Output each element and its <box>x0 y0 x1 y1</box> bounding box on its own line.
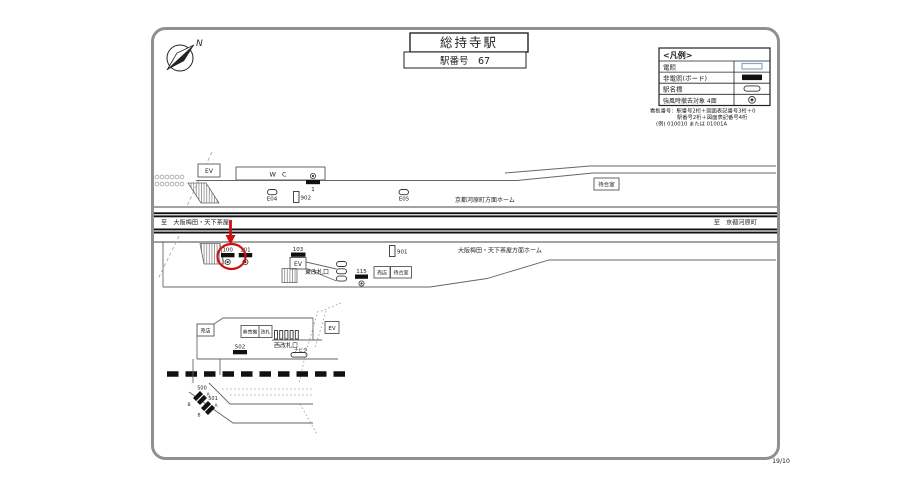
legend-label-lit: 電照 <box>663 64 677 72</box>
sign-e05-oval <box>399 190 409 195</box>
east-ticket-gates <box>337 262 347 282</box>
sign-1-wind-dot <box>312 175 314 177</box>
sign-115-wind-dot <box>360 282 362 284</box>
west-shop-label: 売店 <box>200 328 210 335</box>
sign-103-board <box>291 253 306 257</box>
sign-115-label: 115 <box>356 269 367 275</box>
upper-waiting-room-label: 待合室 <box>598 181 615 189</box>
east-gate-label: 東改札口 <box>305 268 329 276</box>
toilet-label: W C <box>269 171 288 179</box>
sign-901-label: 901 <box>397 250 408 256</box>
sign-103-label: 103 <box>293 247 304 253</box>
track-line <box>154 232 777 234</box>
direction-label-kawaramachi: 至 京都河原町 <box>714 219 757 227</box>
note-line-1: 看板番号：駅番号2桁＋図面表記番号3桁＋0 <box>650 107 756 115</box>
legend-oval-symbol <box>744 86 760 91</box>
navita-panel <box>291 353 307 358</box>
sign-1-board <box>306 180 320 184</box>
track-line <box>154 212 777 214</box>
sign-100-wind-dot <box>227 261 229 263</box>
page-number: 19/10 <box>772 458 790 465</box>
sign-901-panel <box>390 246 396 257</box>
sign-e04: E04 <box>267 190 278 203</box>
legend-title: <凡例> <box>663 50 692 60</box>
lower-elevator-label: EV <box>294 261 303 268</box>
sign-e04-label: E04 <box>267 197 278 203</box>
station-map-page: N 総持寺駅 駅番号 67 <凡例> 電照 非電照(ボード) 駅名標 強風時撤去… <box>0 0 919 491</box>
note-line-3: (例) 010010 または 01001A <box>656 120 727 128</box>
track-line <box>154 229 777 231</box>
sign-e04-oval <box>268 190 278 195</box>
legend-label-board: 非電照(ボード) <box>663 74 707 83</box>
station-name: 総持寺駅 <box>440 35 498 50</box>
legend-label-wind: 強風時撤去対象 4面 <box>663 97 717 105</box>
sign-501-b-label: B <box>198 413 201 419</box>
sign-e05: E05 <box>399 190 410 203</box>
sign-e05-label: E05 <box>399 197 410 203</box>
title-block: 総持寺駅 駅番号 67 <box>404 33 528 68</box>
sign-902-label: 902 <box>301 196 312 202</box>
sign-502-board <box>233 350 247 354</box>
lower-platform-stairs <box>200 244 224 265</box>
sign-1-label: 1 <box>311 187 315 193</box>
sign-500-b-label: B <box>188 402 191 408</box>
sign-100-board <box>221 253 235 257</box>
legend-label-station-sign: 駅名標 <box>663 85 683 94</box>
legend-board-symbol <box>742 75 762 81</box>
upper-platform-label: 京都河原町方面ホーム <box>455 196 515 204</box>
legend-lit-symbol <box>742 64 762 70</box>
upper-elevator-label: EV <box>205 168 214 175</box>
lower-platform-label: 大阪梅田・天下茶屋方面ホーム <box>458 247 542 255</box>
navita-sign: ナビタ <box>291 347 308 358</box>
ticket-machine-label: 券売機 <box>243 329 258 336</box>
sign-501-label: 501 <box>208 396 218 402</box>
west-elevator-label: EV <box>328 326 335 332</box>
lower-waiting-room-label: 待合室 <box>393 270 408 277</box>
sign-902-panel <box>294 192 300 203</box>
compass-north-label: N <box>196 39 203 49</box>
station-map-drawing: N 総持寺駅 駅番号 67 <凡例> 電照 非電照(ボード) 駅名標 強風時撤去… <box>0 0 919 491</box>
sign-502: 502 <box>233 345 247 355</box>
station-number: 駅番号 67 <box>440 55 490 67</box>
sign-500-label: 500 <box>197 386 207 392</box>
track-line <box>154 215 777 217</box>
sign-502-label: 502 <box>235 345 246 351</box>
note-line-2: 駅番号2桁＋図面表記番号4桁 <box>677 113 748 121</box>
legend-box: <凡例> 電照 非電照(ボード) 駅名標 強風時撤去対象 4面 <box>659 48 770 106</box>
sign-115-board <box>355 275 368 279</box>
direction-label-umeda: 至 大阪梅田・天下茶屋 <box>161 219 229 227</box>
gate-box-label: 改札 <box>261 329 271 336</box>
lower-shop-label: 売店 <box>377 270 387 277</box>
east-gate-stairs <box>282 269 297 283</box>
sign-100-label: 100 <box>222 248 233 254</box>
